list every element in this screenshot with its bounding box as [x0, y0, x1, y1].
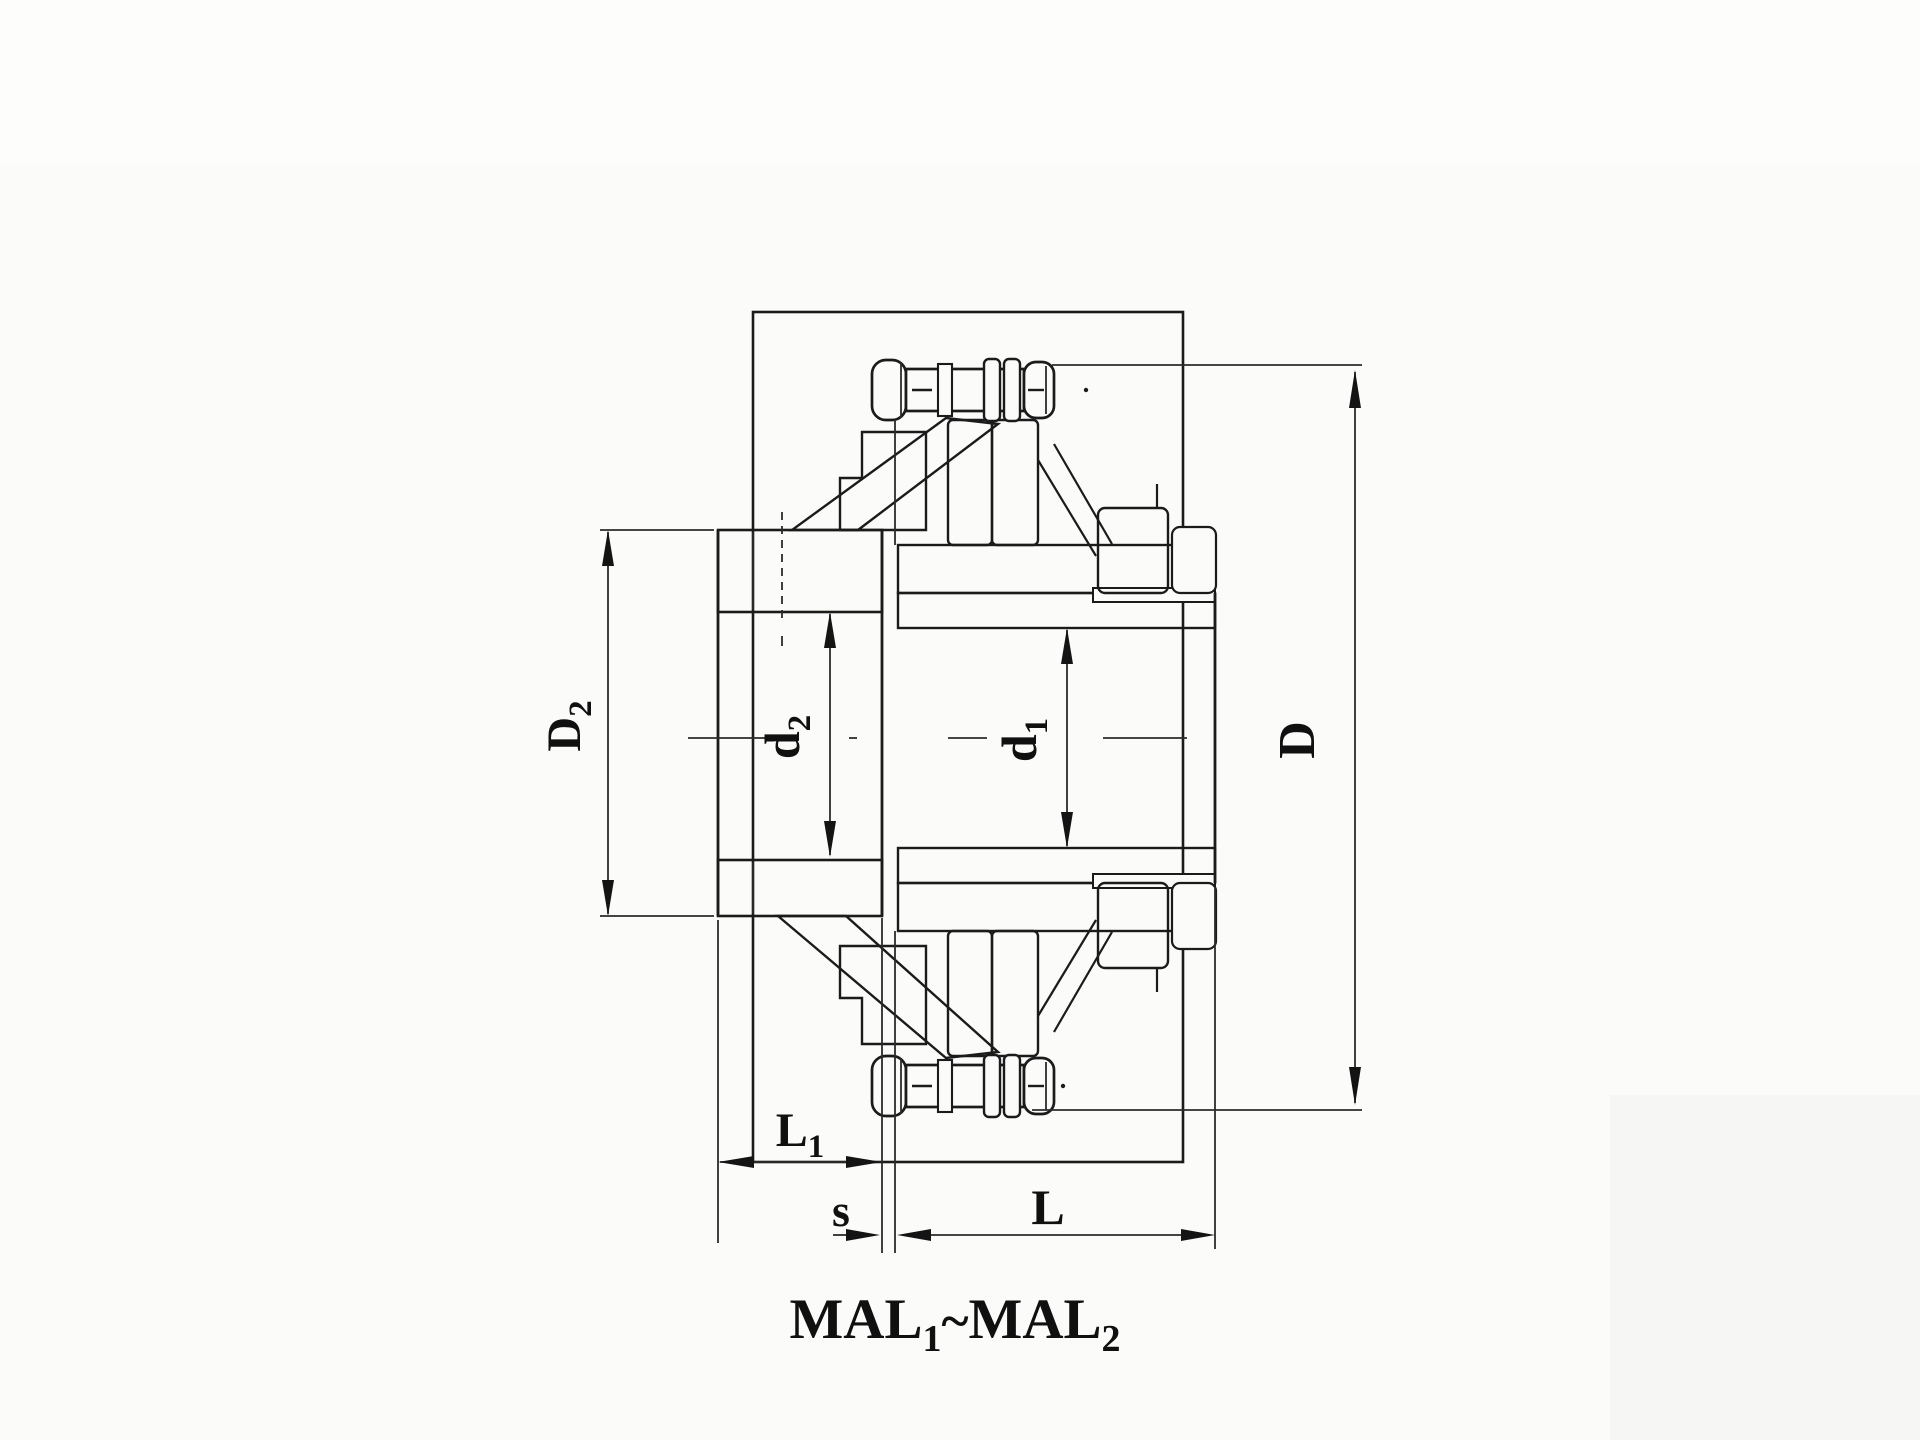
drum-web-lower	[778, 916, 998, 1058]
dim-coupling-length: L	[897, 1179, 1215, 1241]
drum-outline-rect	[753, 312, 1183, 1162]
technical-drawing: D2 d2 d1	[0, 0, 1920, 1440]
bolt-upper	[872, 359, 1088, 421]
dim-label-s: s	[832, 1185, 850, 1236]
flange-plates-lower	[948, 920, 1112, 1056]
left-hub-flange	[718, 512, 882, 916]
dim-left-hub-length: L1	[718, 1104, 882, 1168]
dim-label-D2: D2	[538, 700, 599, 751]
dim-left-flange-diameter: D2	[538, 530, 714, 916]
bolt-lower	[872, 1055, 1065, 1117]
drawing-title: MAL1~MAL2	[789, 1288, 1120, 1360]
dim-label-L: L	[1031, 1179, 1064, 1235]
drawing-page: D2 d2 d1	[0, 0, 1920, 1440]
dim-label-L1: L1	[776, 1104, 825, 1165]
left-rim-step-upper	[840, 432, 926, 530]
dim-outer-diameter: D	[1032, 365, 1362, 1110]
flange-plates-upper	[948, 420, 1112, 556]
dim-label-D: D	[1269, 721, 1326, 759]
dim-flange-gap: s	[832, 1185, 880, 1241]
dim-right-bore-diameter: d1	[991, 628, 1073, 848]
dim-label-d2: d2	[754, 715, 818, 759]
dim-label-d1: d1	[991, 718, 1055, 762]
dim-left-bore-diameter: d2	[754, 612, 836, 857]
